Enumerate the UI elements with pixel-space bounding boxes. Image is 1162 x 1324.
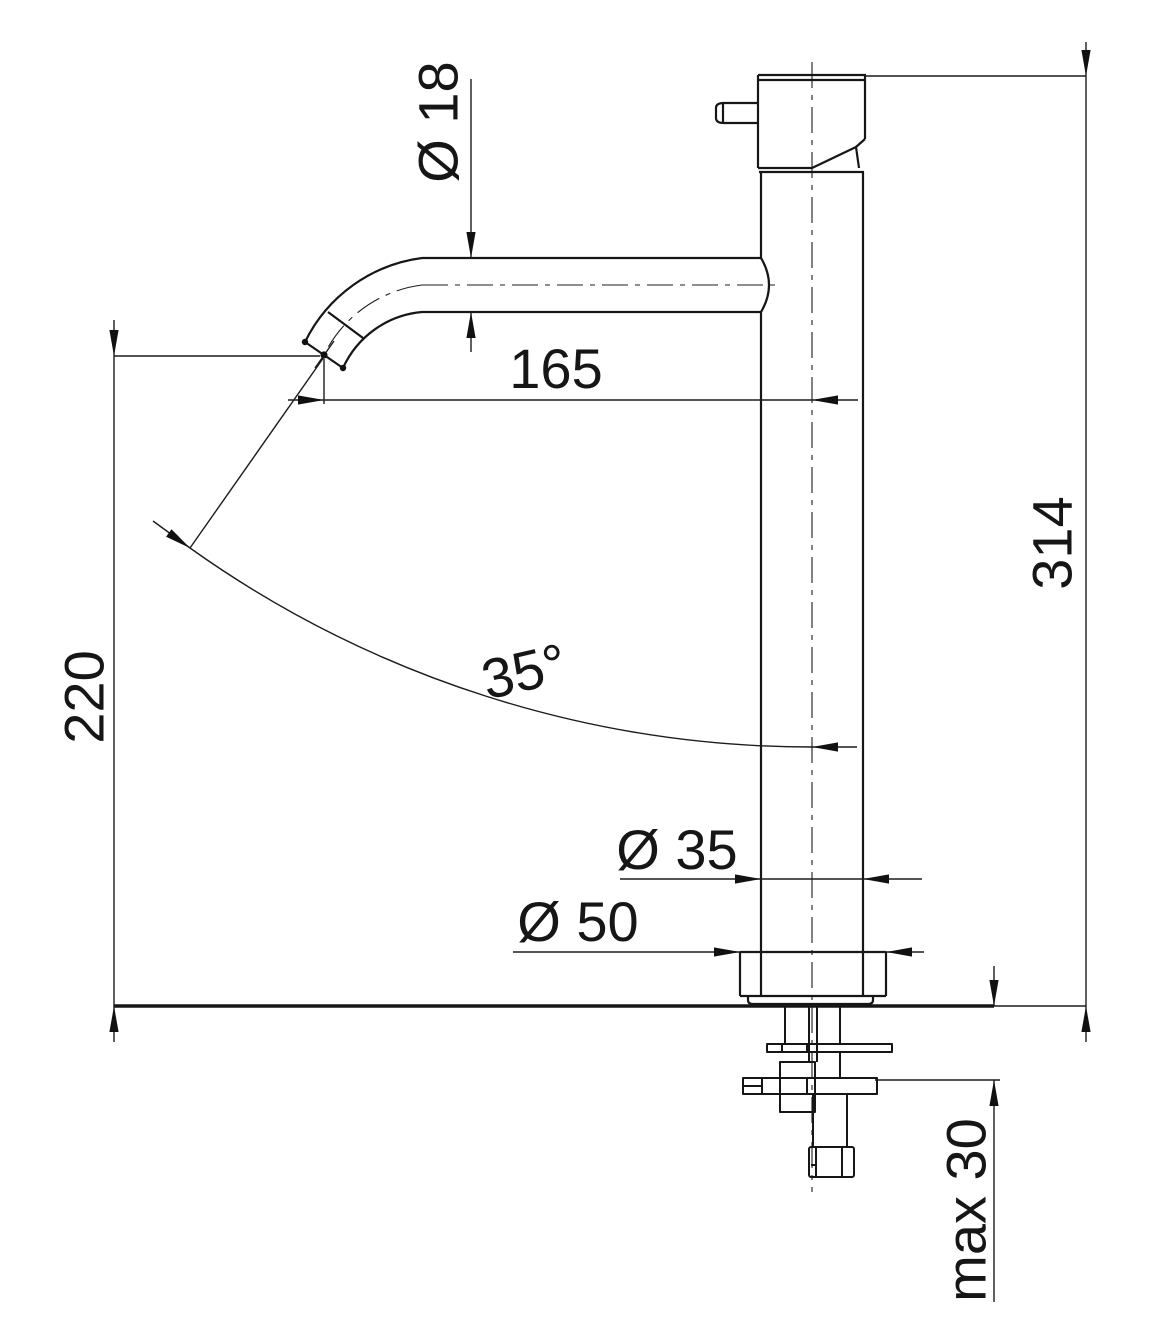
arrowhead-right-icon (298, 395, 324, 404)
arrowhead-right-icon (714, 947, 740, 956)
spout-inner-bend (343, 312, 422, 368)
arrowhead-right-icon (735, 874, 761, 883)
arrowhead-down-icon (1081, 50, 1090, 76)
horseshoe-washer (767, 1044, 892, 1052)
dim-label-base-diameter: Ø 50 (517, 890, 638, 953)
arrowhead-down-icon (109, 330, 118, 356)
dim-spout-reach: 165 (288, 337, 858, 405)
head-bevel-side (856, 147, 859, 168)
arrowhead-arc-left-icon (166, 529, 190, 548)
dim-label-body-diameter: Ø 35 (616, 818, 737, 881)
arrowhead-down-icon (989, 980, 998, 1006)
dim-max-thickness: max 30 (875, 966, 1000, 1302)
dim-label-spout-diameter: Ø 18 (407, 61, 470, 182)
drawing-sheet: Ø 18 165 220 314 (0, 0, 1162, 1324)
angle-ray (190, 357, 324, 548)
arrowhead-up-icon (466, 312, 475, 338)
spout-outer-bend (305, 258, 422, 342)
dim-label-total-height: 314 (1021, 496, 1084, 589)
arrowhead-left-icon (886, 947, 912, 956)
arrowhead-up-icon (989, 1080, 998, 1106)
end-face-node-top (302, 339, 308, 345)
hose-block (780, 1062, 815, 1112)
arrowhead-up-icon (109, 1006, 118, 1032)
end-face-node-bottom (340, 365, 346, 371)
dim-label-outlet-height: 220 (53, 650, 116, 743)
arrowhead-down-icon (466, 232, 475, 258)
dim-total-height: 314 (865, 42, 1091, 1042)
dim-label-spout-reach: 165 (509, 337, 602, 400)
centerlines (324, 62, 812, 1192)
aerator-seam (328, 312, 363, 338)
dim-label-max-thickness: max 30 (935, 1118, 998, 1302)
mounting-hardware (743, 1006, 892, 1177)
dim-label-spout-angle: 35° (476, 631, 573, 711)
base-gasket (748, 996, 873, 1004)
dim-spout-diameter: Ø 18 (407, 61, 476, 352)
arrowhead-up-icon (1081, 1006, 1090, 1032)
dim-spout-angle: 35° (153, 357, 857, 752)
arrowhead-left-icon (863, 874, 889, 883)
arrowhead-arc-right-icon (812, 742, 838, 751)
arrowhead-left-icon (812, 395, 838, 404)
dim-body-diameter: Ø 35 (616, 818, 922, 884)
faucet-technical-drawing: Ø 18 165 220 314 (0, 0, 1162, 1324)
faucet-head (716, 75, 866, 172)
dim-outlet-height: 220 (53, 320, 320, 1042)
clamp-plate (743, 1078, 877, 1094)
